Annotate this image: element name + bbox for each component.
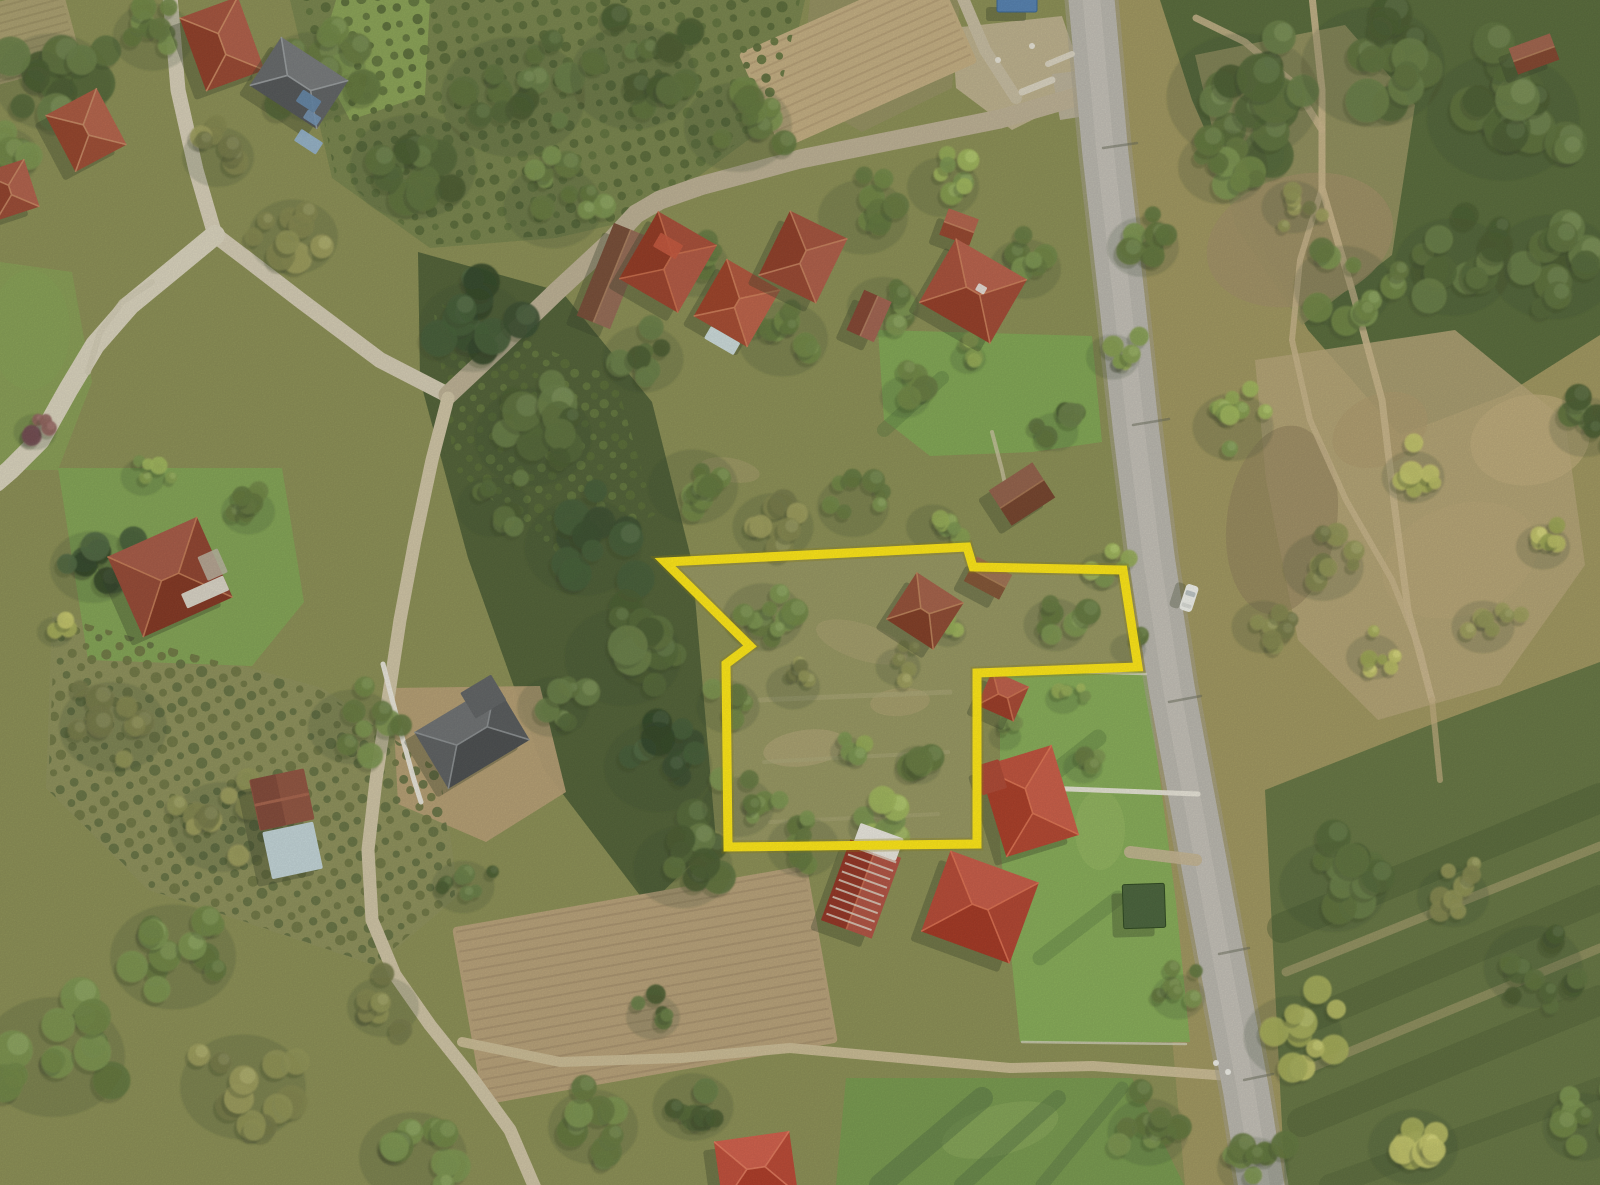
aerial-photo-canvas [0, 0, 1600, 1185]
aerial-photograph [0, 0, 1600, 1185]
film-grain-light [0, 0, 1600, 1185]
